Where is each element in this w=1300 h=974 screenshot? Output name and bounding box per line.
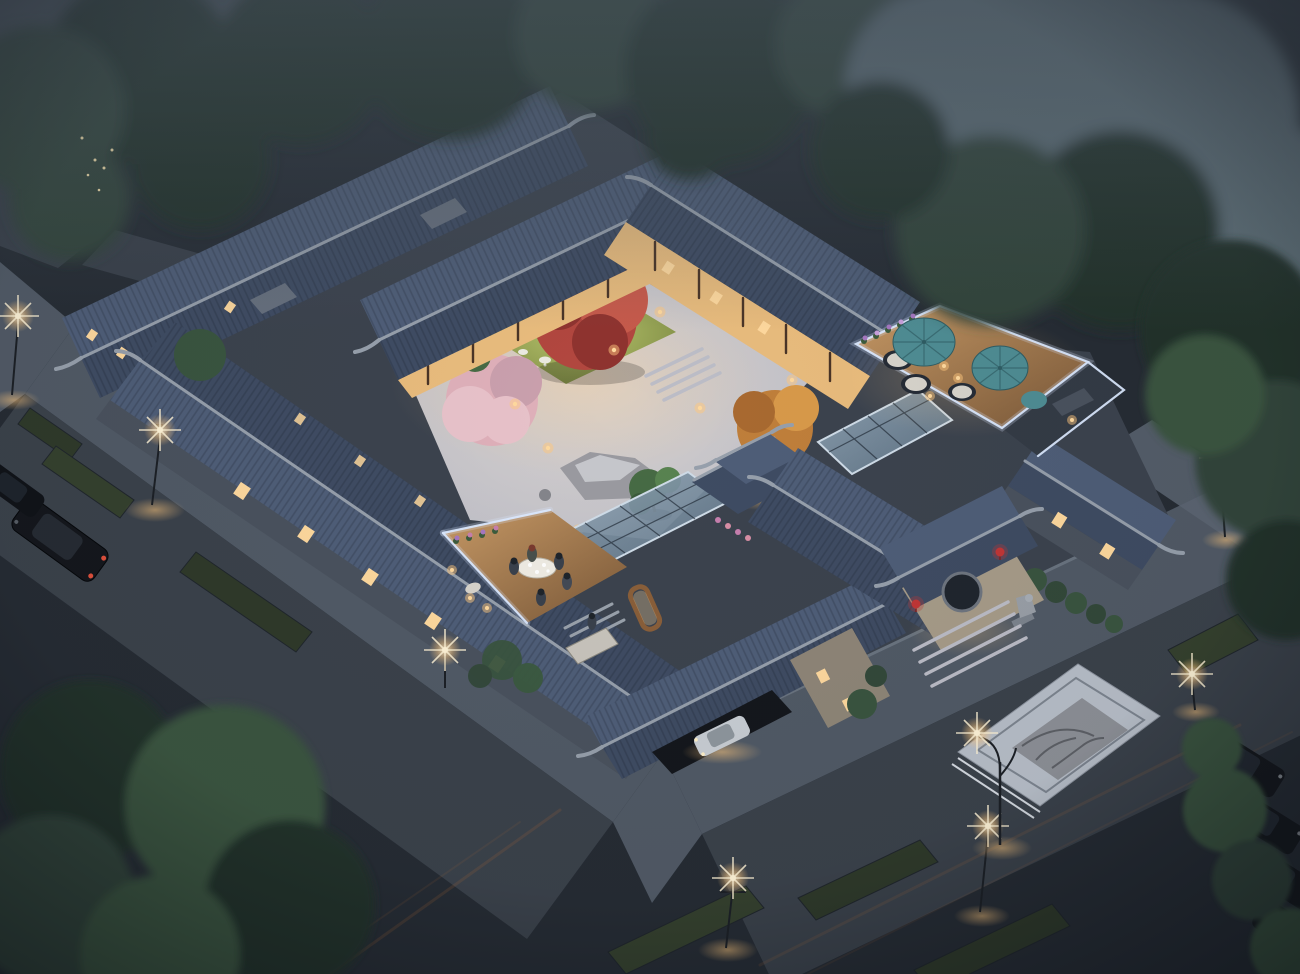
courtyard-rendering — [0, 0, 1300, 974]
rendering-canvas — [0, 0, 1300, 974]
vignette — [0, 0, 1300, 974]
